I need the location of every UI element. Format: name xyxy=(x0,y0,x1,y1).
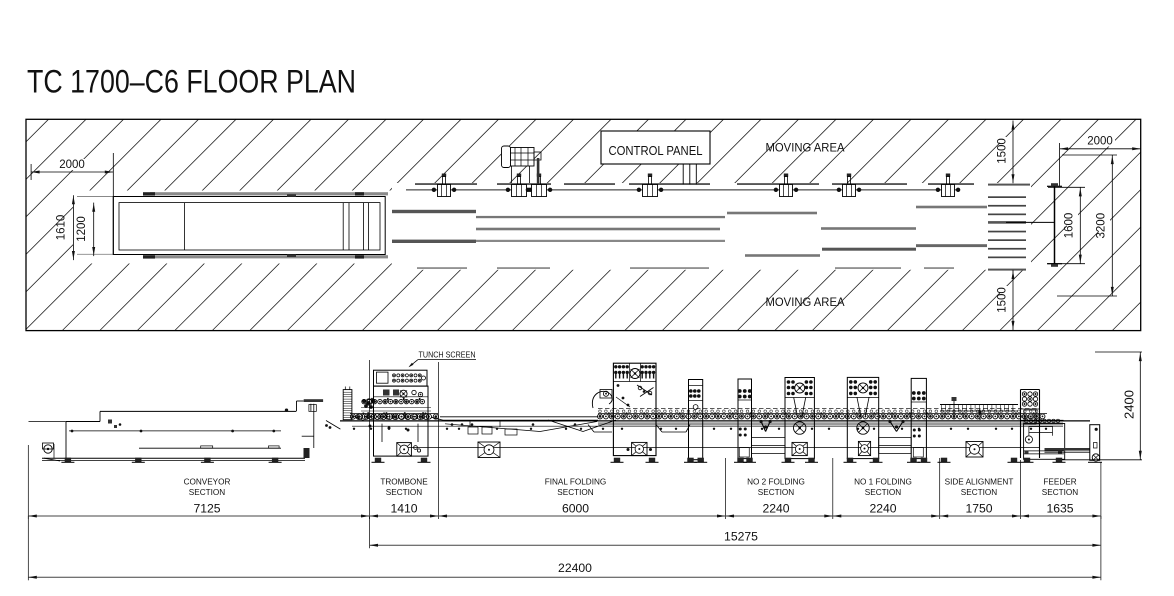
svg-text:SIDE ALIGNMENT: SIDE ALIGNMENT xyxy=(945,477,1014,486)
svg-text:3200: 3200 xyxy=(1096,213,1108,239)
svg-text:1750: 1750 xyxy=(965,501,992,515)
svg-text:SECTION: SECTION xyxy=(758,488,794,497)
svg-text:TROMBONE: TROMBONE xyxy=(380,477,428,486)
svg-text:1610: 1610 xyxy=(56,215,68,241)
svg-text:TC 1700–C6 FLOOR PLAN: TC 1700–C6 FLOOR PLAN xyxy=(27,64,356,100)
svg-text:6000: 6000 xyxy=(562,501,589,515)
svg-text:SECTION: SECTION xyxy=(189,488,225,497)
svg-text:SECTION: SECTION xyxy=(961,488,997,497)
svg-text:NO 1 FOLDING: NO 1 FOLDING xyxy=(854,477,912,486)
svg-text:MOVING AREA: MOVING AREA xyxy=(766,141,846,155)
svg-text:FEEDER: FEEDER xyxy=(1043,477,1076,486)
svg-text:NO 2 FOLDING: NO 2 FOLDING xyxy=(747,477,805,486)
svg-text:15275: 15275 xyxy=(724,530,758,544)
svg-text:1500: 1500 xyxy=(997,287,1009,313)
svg-text:SECTION: SECTION xyxy=(865,488,901,497)
svg-text:2240: 2240 xyxy=(762,501,789,515)
svg-text:1635: 1635 xyxy=(1046,501,1073,515)
svg-text:1410: 1410 xyxy=(390,501,417,515)
svg-text:TUNCH SCREEN: TUNCH SCREEN xyxy=(419,350,476,360)
svg-text:CONTROL PANEL: CONTROL PANEL xyxy=(609,143,703,158)
svg-text:1500: 1500 xyxy=(997,138,1009,164)
svg-text:MOVING AREA: MOVING AREA xyxy=(766,295,846,309)
svg-text:2240: 2240 xyxy=(869,501,896,515)
svg-text:SECTION: SECTION xyxy=(1042,488,1078,497)
svg-text:2400: 2400 xyxy=(1122,390,1137,419)
svg-text:1200: 1200 xyxy=(76,216,88,242)
svg-text:2000: 2000 xyxy=(1087,136,1113,148)
svg-text:CONVEYOR: CONVEYOR xyxy=(184,477,231,486)
svg-text:FINAL FOLDING: FINAL FOLDING xyxy=(545,477,607,486)
svg-text:7125: 7125 xyxy=(193,501,220,515)
svg-text:SECTION: SECTION xyxy=(386,488,422,497)
svg-text:22400: 22400 xyxy=(558,561,592,575)
svg-text:1600: 1600 xyxy=(1064,213,1076,239)
svg-text:2000: 2000 xyxy=(59,159,85,171)
svg-text:SECTION: SECTION xyxy=(557,488,593,497)
